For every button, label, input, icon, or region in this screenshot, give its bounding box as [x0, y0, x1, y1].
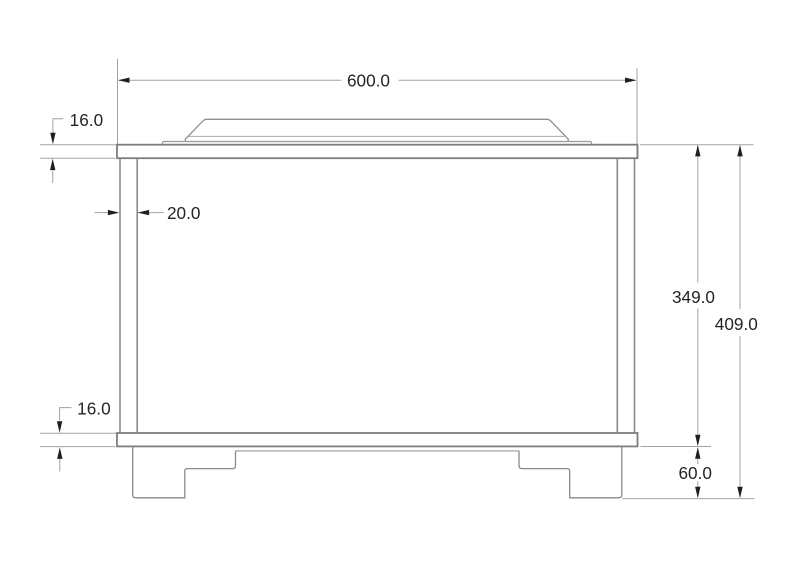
- svg-text:16.0: 16.0: [77, 399, 110, 419]
- svg-text:409.0: 409.0: [715, 314, 758, 334]
- svg-text:349.0: 349.0: [672, 287, 715, 307]
- svg-text:600.0: 600.0: [347, 70, 390, 90]
- svg-text:16.0: 16.0: [70, 110, 103, 130]
- svg-text:60.0: 60.0: [678, 463, 711, 483]
- svg-text:20.0: 20.0: [167, 203, 200, 223]
